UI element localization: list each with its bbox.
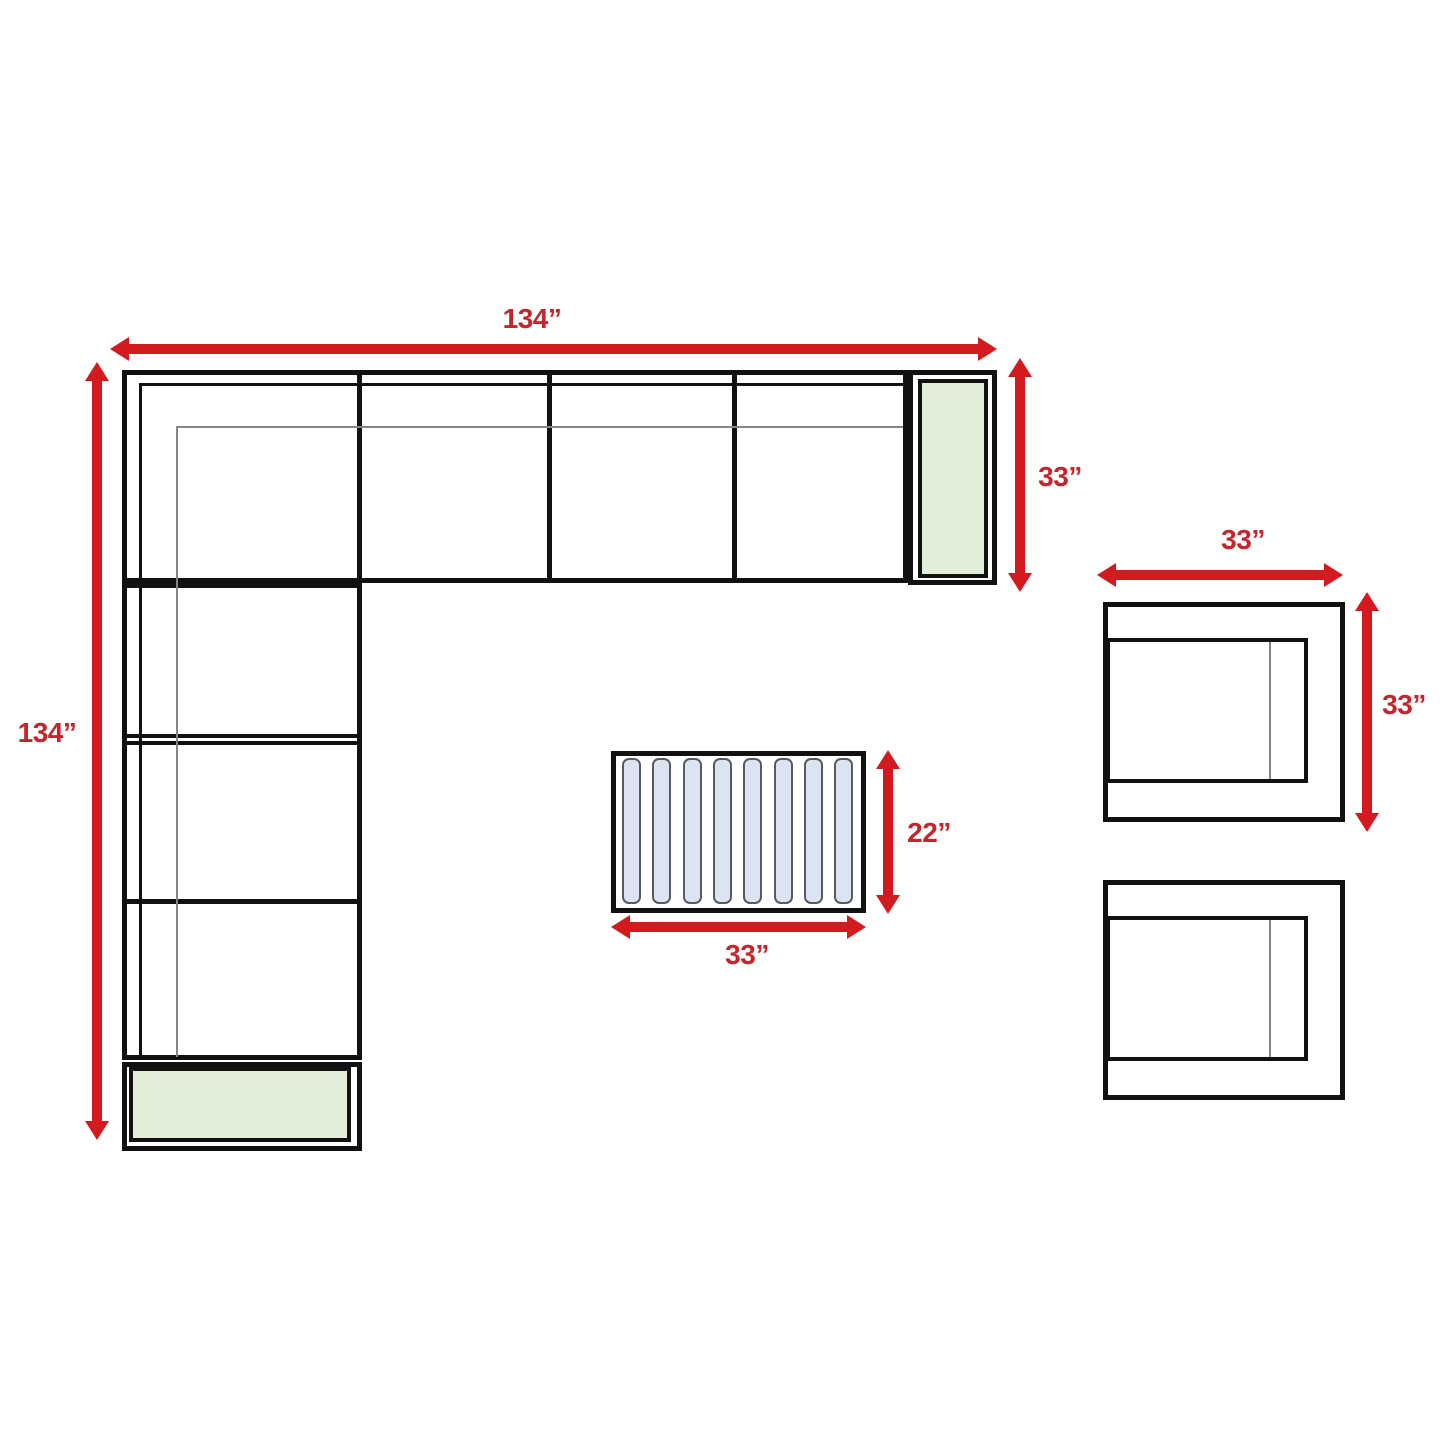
sectional-left-body bbox=[122, 583, 362, 1060]
table-slat bbox=[834, 758, 853, 904]
sectional-end-cushion bbox=[918, 379, 988, 578]
arrow-head-icon bbox=[1008, 358, 1032, 377]
dim-label-table-depth: 22” bbox=[907, 817, 951, 849]
sectional-backrest-line-left bbox=[139, 385, 142, 1057]
arrow-head-icon bbox=[876, 750, 900, 769]
arrow-head-icon bbox=[1324, 563, 1343, 587]
arrow-shaft bbox=[883, 765, 893, 899]
dim-label-table-width: 33” bbox=[725, 939, 769, 971]
sectional-seat-divider bbox=[547, 370, 552, 583]
dim-label-sectional-end-depth: 33” bbox=[1038, 461, 1082, 493]
arrow-shaft bbox=[1015, 373, 1025, 577]
arrow-head-icon bbox=[1355, 813, 1379, 832]
arrow-head-icon bbox=[876, 895, 900, 914]
arrow-shaft bbox=[92, 377, 102, 1125]
dimension-arrow-sectional-end-depth bbox=[1008, 358, 1032, 592]
floor-plan: 134” 134” 33” 33” 33” 22” 33” bbox=[0, 0, 1445, 1445]
chair-2-cushion-seam bbox=[1269, 920, 1271, 1057]
table-slat bbox=[683, 758, 702, 904]
dimension-arrow-table-width bbox=[611, 915, 866, 939]
chair-2-seat bbox=[1106, 916, 1308, 1061]
sectional-top-body bbox=[122, 370, 908, 583]
arrow-head-icon bbox=[847, 915, 866, 939]
table-slat bbox=[652, 758, 671, 904]
sectional-seat-divider bbox=[122, 734, 362, 738]
chair-1-seat bbox=[1106, 638, 1308, 783]
sectional-seat-divider bbox=[122, 899, 362, 904]
arrow-head-icon bbox=[110, 337, 129, 361]
chair-1-cushion-seam bbox=[1269, 642, 1271, 779]
sectional-seat-divider bbox=[732, 370, 737, 583]
arrow-head-icon bbox=[978, 337, 997, 361]
arrow-shaft bbox=[1362, 607, 1372, 817]
sectional-backrest-line-top bbox=[139, 383, 903, 386]
arrow-head-icon bbox=[85, 362, 109, 381]
sectional-ottoman-cushion bbox=[129, 1067, 351, 1142]
table-slat bbox=[804, 758, 823, 904]
table-slats bbox=[616, 756, 861, 908]
dimension-arrow-chair-depth bbox=[1355, 592, 1379, 832]
dimension-arrow-table-depth bbox=[876, 750, 900, 914]
table-slat bbox=[713, 758, 732, 904]
arrow-head-icon bbox=[1008, 573, 1032, 592]
arrow-head-icon bbox=[1097, 563, 1116, 587]
arrow-head-icon bbox=[611, 915, 630, 939]
arrow-shaft bbox=[125, 344, 982, 354]
dimension-arrow-sectional-depth bbox=[85, 362, 109, 1140]
dim-label-sectional-width: 134” bbox=[503, 303, 562, 335]
dim-label-sectional-depth: 134” bbox=[18, 717, 77, 749]
arrow-shaft bbox=[626, 922, 851, 932]
table-slat bbox=[743, 758, 762, 904]
sectional-cushion-seam-left bbox=[176, 427, 178, 1057]
sectional-seat-divider bbox=[357, 370, 362, 583]
arrow-shaft bbox=[1112, 570, 1328, 580]
table-slat bbox=[622, 758, 641, 904]
dim-label-chair-depth: 33” bbox=[1382, 689, 1426, 721]
dimension-arrow-chair-width bbox=[1097, 563, 1343, 587]
arrow-head-icon bbox=[1355, 592, 1379, 611]
sectional-cushion-seam-top bbox=[176, 426, 903, 428]
table-slat bbox=[774, 758, 793, 904]
coffee-table bbox=[611, 751, 866, 913]
sectional-seat-divider bbox=[122, 741, 362, 745]
dimension-arrow-sectional-width bbox=[110, 337, 997, 361]
arrow-head-icon bbox=[85, 1121, 109, 1140]
dim-label-chair-width: 33” bbox=[1221, 524, 1265, 556]
